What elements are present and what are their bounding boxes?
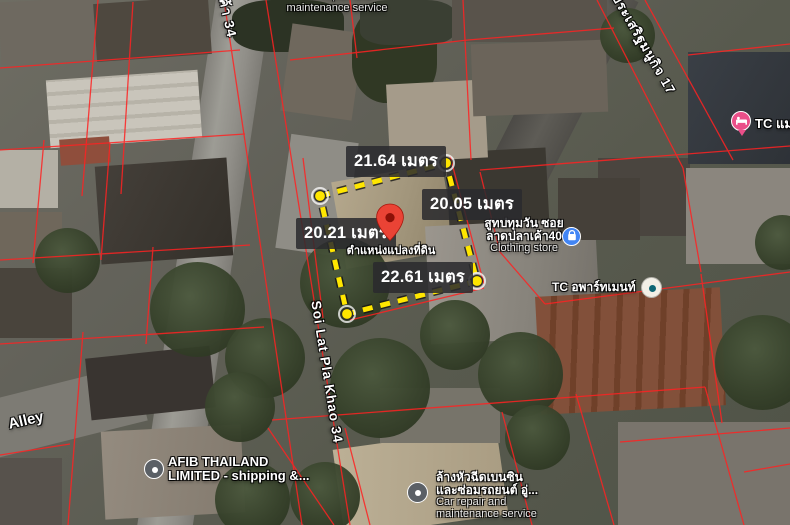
poi-circle-icon[interactable] xyxy=(641,277,662,298)
measurement-right: 20.05 เมตร xyxy=(422,189,522,220)
corner-dot xyxy=(472,276,483,287)
poi-tc-apartment-label[interactable]: TC อพาร์ทเมนท์ xyxy=(552,281,636,294)
poi-circle-icon[interactable] xyxy=(407,482,428,503)
poi-car-repair[interactable]: ล้างหัวฉีดเบนซิน และซ่อมรถยนต์ อู่... Ca… xyxy=(436,471,538,521)
poi-line: Clothing store xyxy=(468,243,580,255)
bed-icon[interactable] xyxy=(731,111,751,131)
poi-afib[interactable]: AFIB THAILAND LIMITED - shipping &... xyxy=(168,455,310,483)
satellite-map-canvas[interactable]: 21.64 เมตร 20.05 เมตร 20.21 เมตร 22.61 เ… xyxy=(0,0,790,525)
shopping-bag-icon[interactable] xyxy=(562,227,581,246)
poi-line: และซ่อมรถยนต์ อู่... xyxy=(436,484,538,497)
poi-line: ล้างหัวฉีดเบนซิน xyxy=(436,471,538,484)
poi-circle-icon[interactable] xyxy=(144,459,164,479)
corner-dot xyxy=(342,309,353,320)
plot-marker-caption: ตำแหน่งแปลงที่ดิน xyxy=(347,241,436,259)
poi-line: Car repair and xyxy=(436,497,538,509)
poi-line: AFIB THAILAND xyxy=(168,455,310,469)
poi-line: LIMITED - shipping &... xyxy=(168,469,310,483)
poi-tc-mansion-label[interactable]: TC แมนชั่น xyxy=(755,117,790,131)
poi-car-repair-top[interactable]: Car repair and maintenance service xyxy=(282,0,392,15)
measurement-bottom: 22.61 เมตร xyxy=(373,262,473,293)
measurement-top: 21.64 เมตร xyxy=(346,146,446,177)
corner-dot xyxy=(315,191,326,202)
poi-line: maintenance service xyxy=(436,509,538,521)
poi-line: maintenance service xyxy=(282,2,392,15)
